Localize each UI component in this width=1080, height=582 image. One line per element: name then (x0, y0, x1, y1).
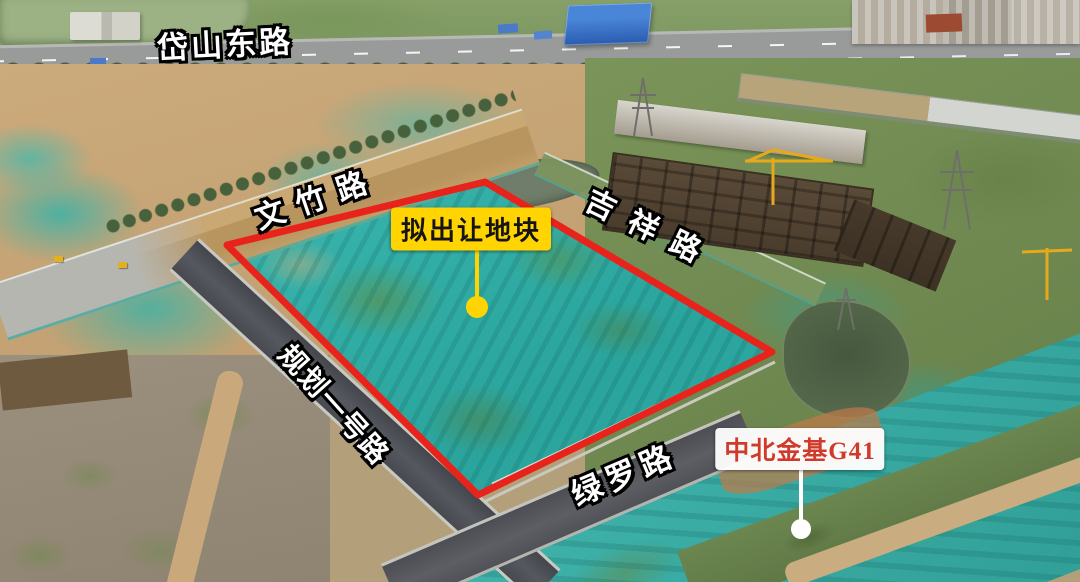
parcel-callout: 拟出让地块 (391, 208, 551, 251)
parcel-marker-dot (466, 296, 488, 318)
aerial-photo: 岱山东路 文竹路 吉祥路 规划一号路 绿罗路 拟出让地块 中北金基G41 (0, 0, 1080, 582)
project-marker-dot (791, 519, 811, 539)
road-label-daishan-east: 岱山东路 (156, 16, 294, 68)
project-callout: 中北金基G41 (715, 428, 884, 470)
annotation-overlay (0, 0, 1080, 582)
